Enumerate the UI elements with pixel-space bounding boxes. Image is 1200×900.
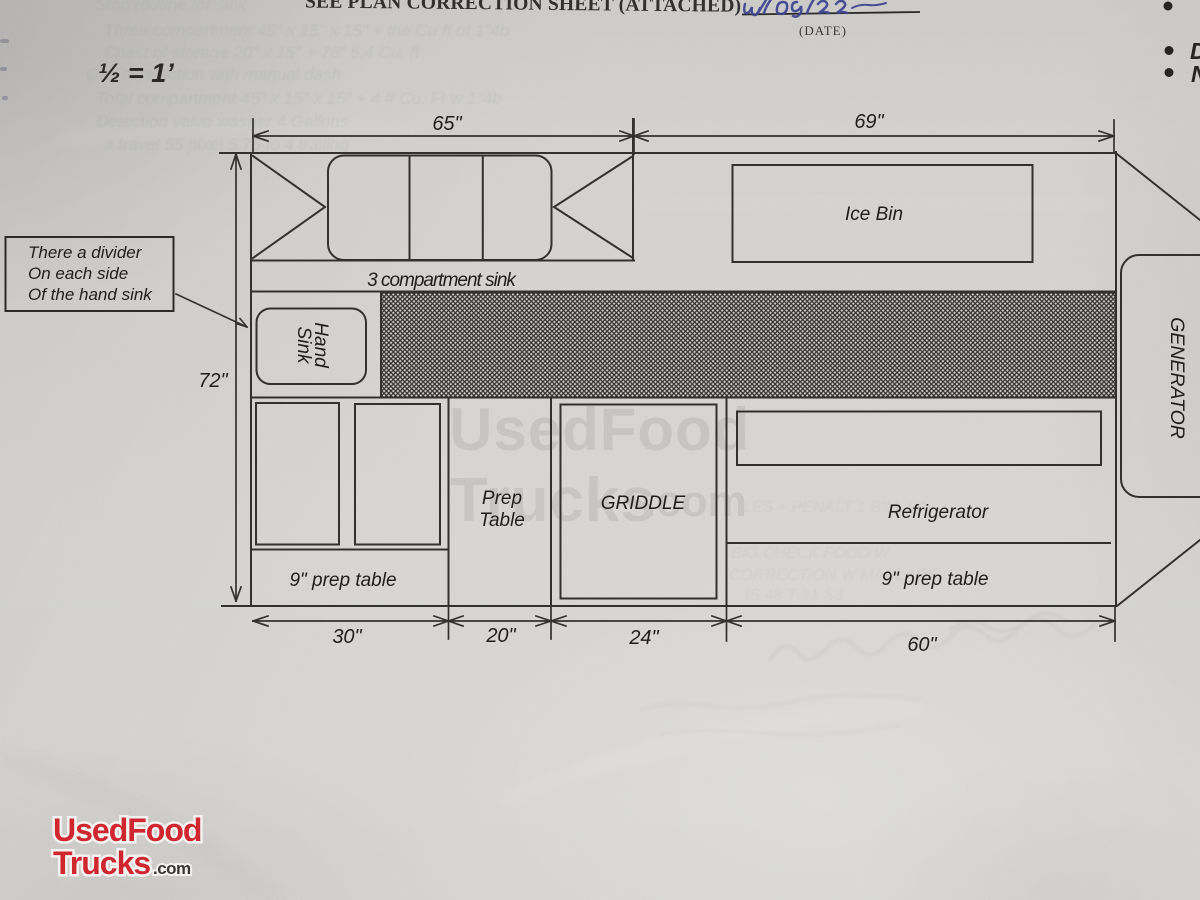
svg-text:65": 65" [432,113,462,135]
svg-text:Three compartment 48" x 15" x: Three compartment 48" x 15" x 15" + the … [104,21,509,40]
svg-text:20": 20" [485,625,516,647]
svg-text:PrepTable: PrepTable [479,488,525,531]
svg-text:Refrigerator: Refrigerator [888,502,989,523]
svg-text:24": 24" [628,627,659,649]
svg-text:(DATE): (DATE) [799,23,847,38]
svg-text:HandSink: HandSink [293,322,331,369]
svg-text:N: N [1191,61,1200,87]
svg-text:GRIDDLE: GRIDDLE [601,493,686,514]
svg-text:9" prep table: 9" prep table [289,570,396,591]
svg-text:69": 69" [854,111,884,133]
svg-text:60": 60" [907,634,937,656]
svg-text:UsedFood: UsedFood [53,812,201,848]
svg-text:GENERATOR: GENERATOR [1166,317,1188,439]
svg-text:BIG CHECK FOOD W: BIG CHECK FOOD W [731,545,891,562]
svg-text:3 compartment sink: 3 compartment sink [367,270,517,291]
svg-text:½ = 1’: ½ = 1’ [98,58,174,88]
svg-text:a travel 55 pixel 5.75 to 4 tr: a travel 55 pixel 5.75 to 4 trailing [104,135,349,154]
svg-text:9" prep table: 9" prep table [881,569,988,590]
svg-text:Trucks: Trucks [53,845,150,881]
svg-text:Detection valve washer 4 Gallo: Detection valve washer 4 Gallons [96,112,349,131]
svg-text:IS 48 T 81 S3: IS 48 T 81 S3 [745,587,843,604]
svg-text:UsedFood: UsedFood [449,396,750,463]
svg-text:30": 30" [332,626,362,648]
svg-text:.com: .com [153,859,191,878]
svg-text:Total compartment 45" x 15" x: Total compartment 45" x 15" x 15" + 4 # … [96,89,502,108]
svg-text:Ice Bin: Ice Bin [845,204,903,225]
svg-text:Stop routine for sink: Stop routine for sink [95,0,248,14]
svg-text:72": 72" [198,370,228,392]
